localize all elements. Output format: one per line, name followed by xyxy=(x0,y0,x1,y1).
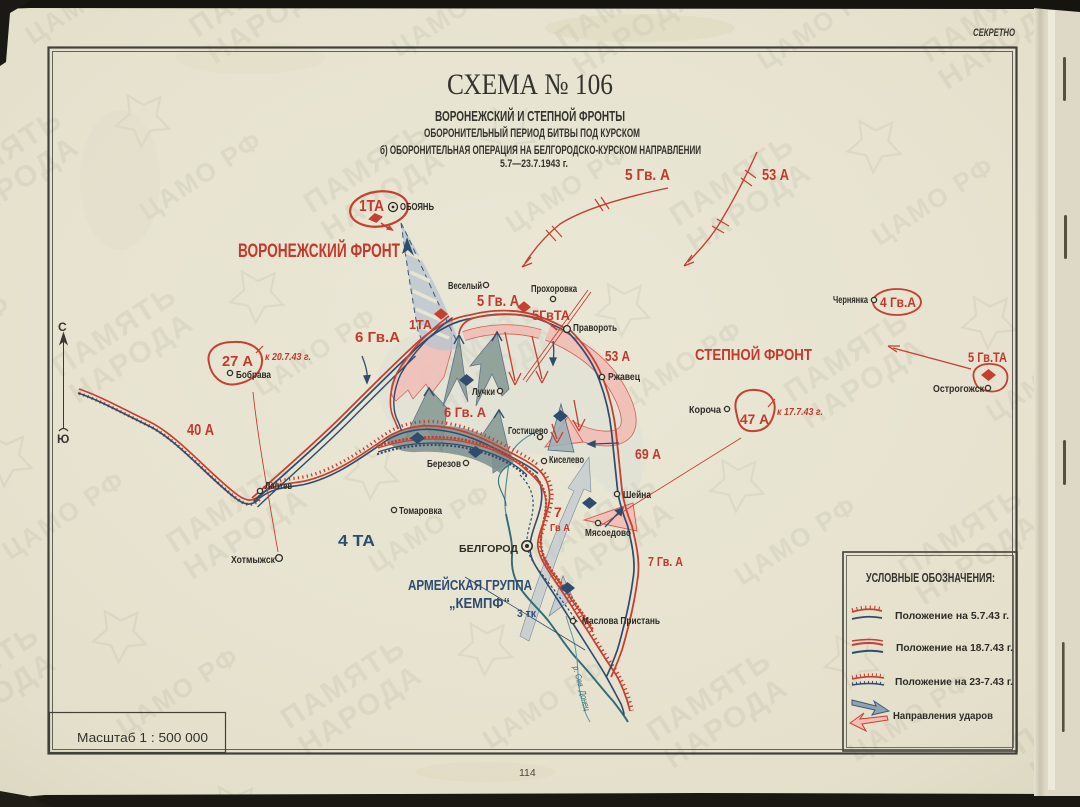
svg-text:4 Гв.А: 4 Гв.А xyxy=(880,294,916,310)
svg-text:Положение на 23-7.43 г.: Положение на 23-7.43 г. xyxy=(895,677,1013,688)
svg-text:47 А: 47 А xyxy=(740,411,769,427)
svg-text:УСЛОВНЫЕ ОБОЗНАЧЕНИЯ:: УСЛОВНЫЕ ОБОЗНАЧЕНИЯ: xyxy=(866,571,995,585)
svg-text:53 А: 53 А xyxy=(605,348,630,365)
svg-text:Ржавец: Ржавец xyxy=(608,372,641,383)
svg-text:69 А: 69 А xyxy=(635,446,661,463)
svg-text:53 А: 53 А xyxy=(762,167,789,184)
svg-text:Острогожск: Острогожск xyxy=(933,384,985,395)
svg-text:Положение на 18.7.43 г.: Положение на 18.7.43 г. xyxy=(896,643,1013,654)
svg-text:Березов: Березов xyxy=(427,459,461,470)
svg-text:Мясоедово: Мясоедово xyxy=(585,528,631,539)
svg-text:СХЕМА № 106: СХЕМА № 106 xyxy=(447,68,613,101)
svg-text:Лаптев: Лаптев xyxy=(265,481,292,492)
svg-text:к 17.7.43 г.: к 17.7.43 г. xyxy=(777,407,823,418)
svg-text:БЕЛГОРОД: БЕЛГОРОД xyxy=(459,544,518,555)
svg-text:Правороть: Правороть xyxy=(573,323,617,334)
svg-text:5 Гв.ТА: 5 Гв.ТА xyxy=(968,349,1007,365)
svg-text:7: 7 xyxy=(554,504,562,520)
svg-text:1ТА: 1ТА xyxy=(409,317,433,332)
svg-text:6 Гв.А: 6 Гв.А xyxy=(355,329,400,346)
svg-text:5 Гв. А: 5 Гв. А xyxy=(477,293,519,310)
svg-text:Ю: Ю xyxy=(57,432,69,446)
svg-text:Гв А: Гв А xyxy=(550,522,570,534)
svg-text:40 А: 40 А xyxy=(187,422,214,439)
svg-text:3 тк: 3 тк xyxy=(517,608,536,620)
svg-text:СЕКРЕТНО: СЕКРЕТНО xyxy=(973,27,1015,39)
svg-text:5.7—23.7.1943 г.: 5.7—23.7.1943 г. xyxy=(500,158,568,170)
svg-text:ВОРОНЕЖСКИЙ И СТЕПНОЙ ФРОНТЫ: ВОРОНЕЖСКИЙ И СТЕПНОЙ ФРОНТЫ xyxy=(435,107,625,125)
svg-text:Томаровка: Томаровка xyxy=(399,506,442,517)
svg-text:27 А: 27 А xyxy=(222,353,253,370)
svg-text:Бобрава: Бобрава xyxy=(236,369,271,381)
svg-text:5ГвТА: 5ГвТА xyxy=(532,307,570,323)
svg-text:1ТА: 1ТА xyxy=(359,198,384,215)
svg-text:б) ОБОРОНИТЕЛЬНАЯ ОПЕРАЦИЯ НА: б) ОБОРОНИТЕЛЬНАЯ ОПЕРАЦИЯ НА БЕЛГОРОДСК… xyxy=(380,143,701,157)
svg-text:ОБОРОНИТЕЛЬНЫЙ ПЕРИОД БИТВЫ ПО: ОБОРОНИТЕЛЬНЫЙ ПЕРИОД БИТВЫ ПОД КУРСКОМ xyxy=(424,125,640,140)
svg-text:ОБОЯНЬ: ОБОЯНЬ xyxy=(400,202,434,213)
svg-text:Маслова Пристань: Маслова Пристань xyxy=(582,616,660,627)
svg-text:5 Гв. А: 5 Гв. А xyxy=(625,167,670,184)
svg-text:Прохоровка: Прохоровка xyxy=(531,284,577,295)
svg-text:С: С xyxy=(58,320,67,334)
svg-text:к 20.7.43 г.: к 20.7.43 г. xyxy=(265,352,311,363)
svg-text:Чернянка: Чернянка xyxy=(833,295,868,306)
svg-text:Гостищево: Гостищево xyxy=(508,426,548,437)
svg-text:Короча: Короча xyxy=(689,405,721,416)
svg-text:Лучки: Лучки xyxy=(472,387,495,398)
svg-text:СТЕПНОЙ ФРОНТ: СТЕПНОЙ ФРОНТ xyxy=(695,345,812,364)
svg-text:Масштаб 1 : 500 000: Масштаб 1 : 500 000 xyxy=(77,731,208,745)
svg-text:Шейна: Шейна xyxy=(623,490,651,501)
svg-text:ВОРОНЕЖСКИЙ ФРОНТ: ВОРОНЕЖСКИЙ ФРОНТ xyxy=(238,240,400,262)
svg-text:7 Гв. А: 7 Гв. А xyxy=(648,554,683,569)
svg-text:Хотмыжск: Хотмыжск xyxy=(231,555,276,566)
svg-text:4 ТА: 4 ТА xyxy=(338,533,375,550)
svg-text:Направления ударов: Направления ударов xyxy=(893,711,993,722)
svg-text:Киселево: Киселево xyxy=(549,455,584,466)
svg-text:114: 114 xyxy=(519,767,536,779)
svg-text:АРМЕЙСКАЯ ГРУППА: АРМЕЙСКАЯ ГРУППА xyxy=(408,576,532,594)
svg-text:Положение на 5.7.43 г.: Положение на 5.7.43 г. xyxy=(895,611,1009,622)
svg-text:Веселый: Веселый xyxy=(448,281,482,292)
svg-text:6 Гв. А: 6 Гв. А xyxy=(444,404,486,420)
